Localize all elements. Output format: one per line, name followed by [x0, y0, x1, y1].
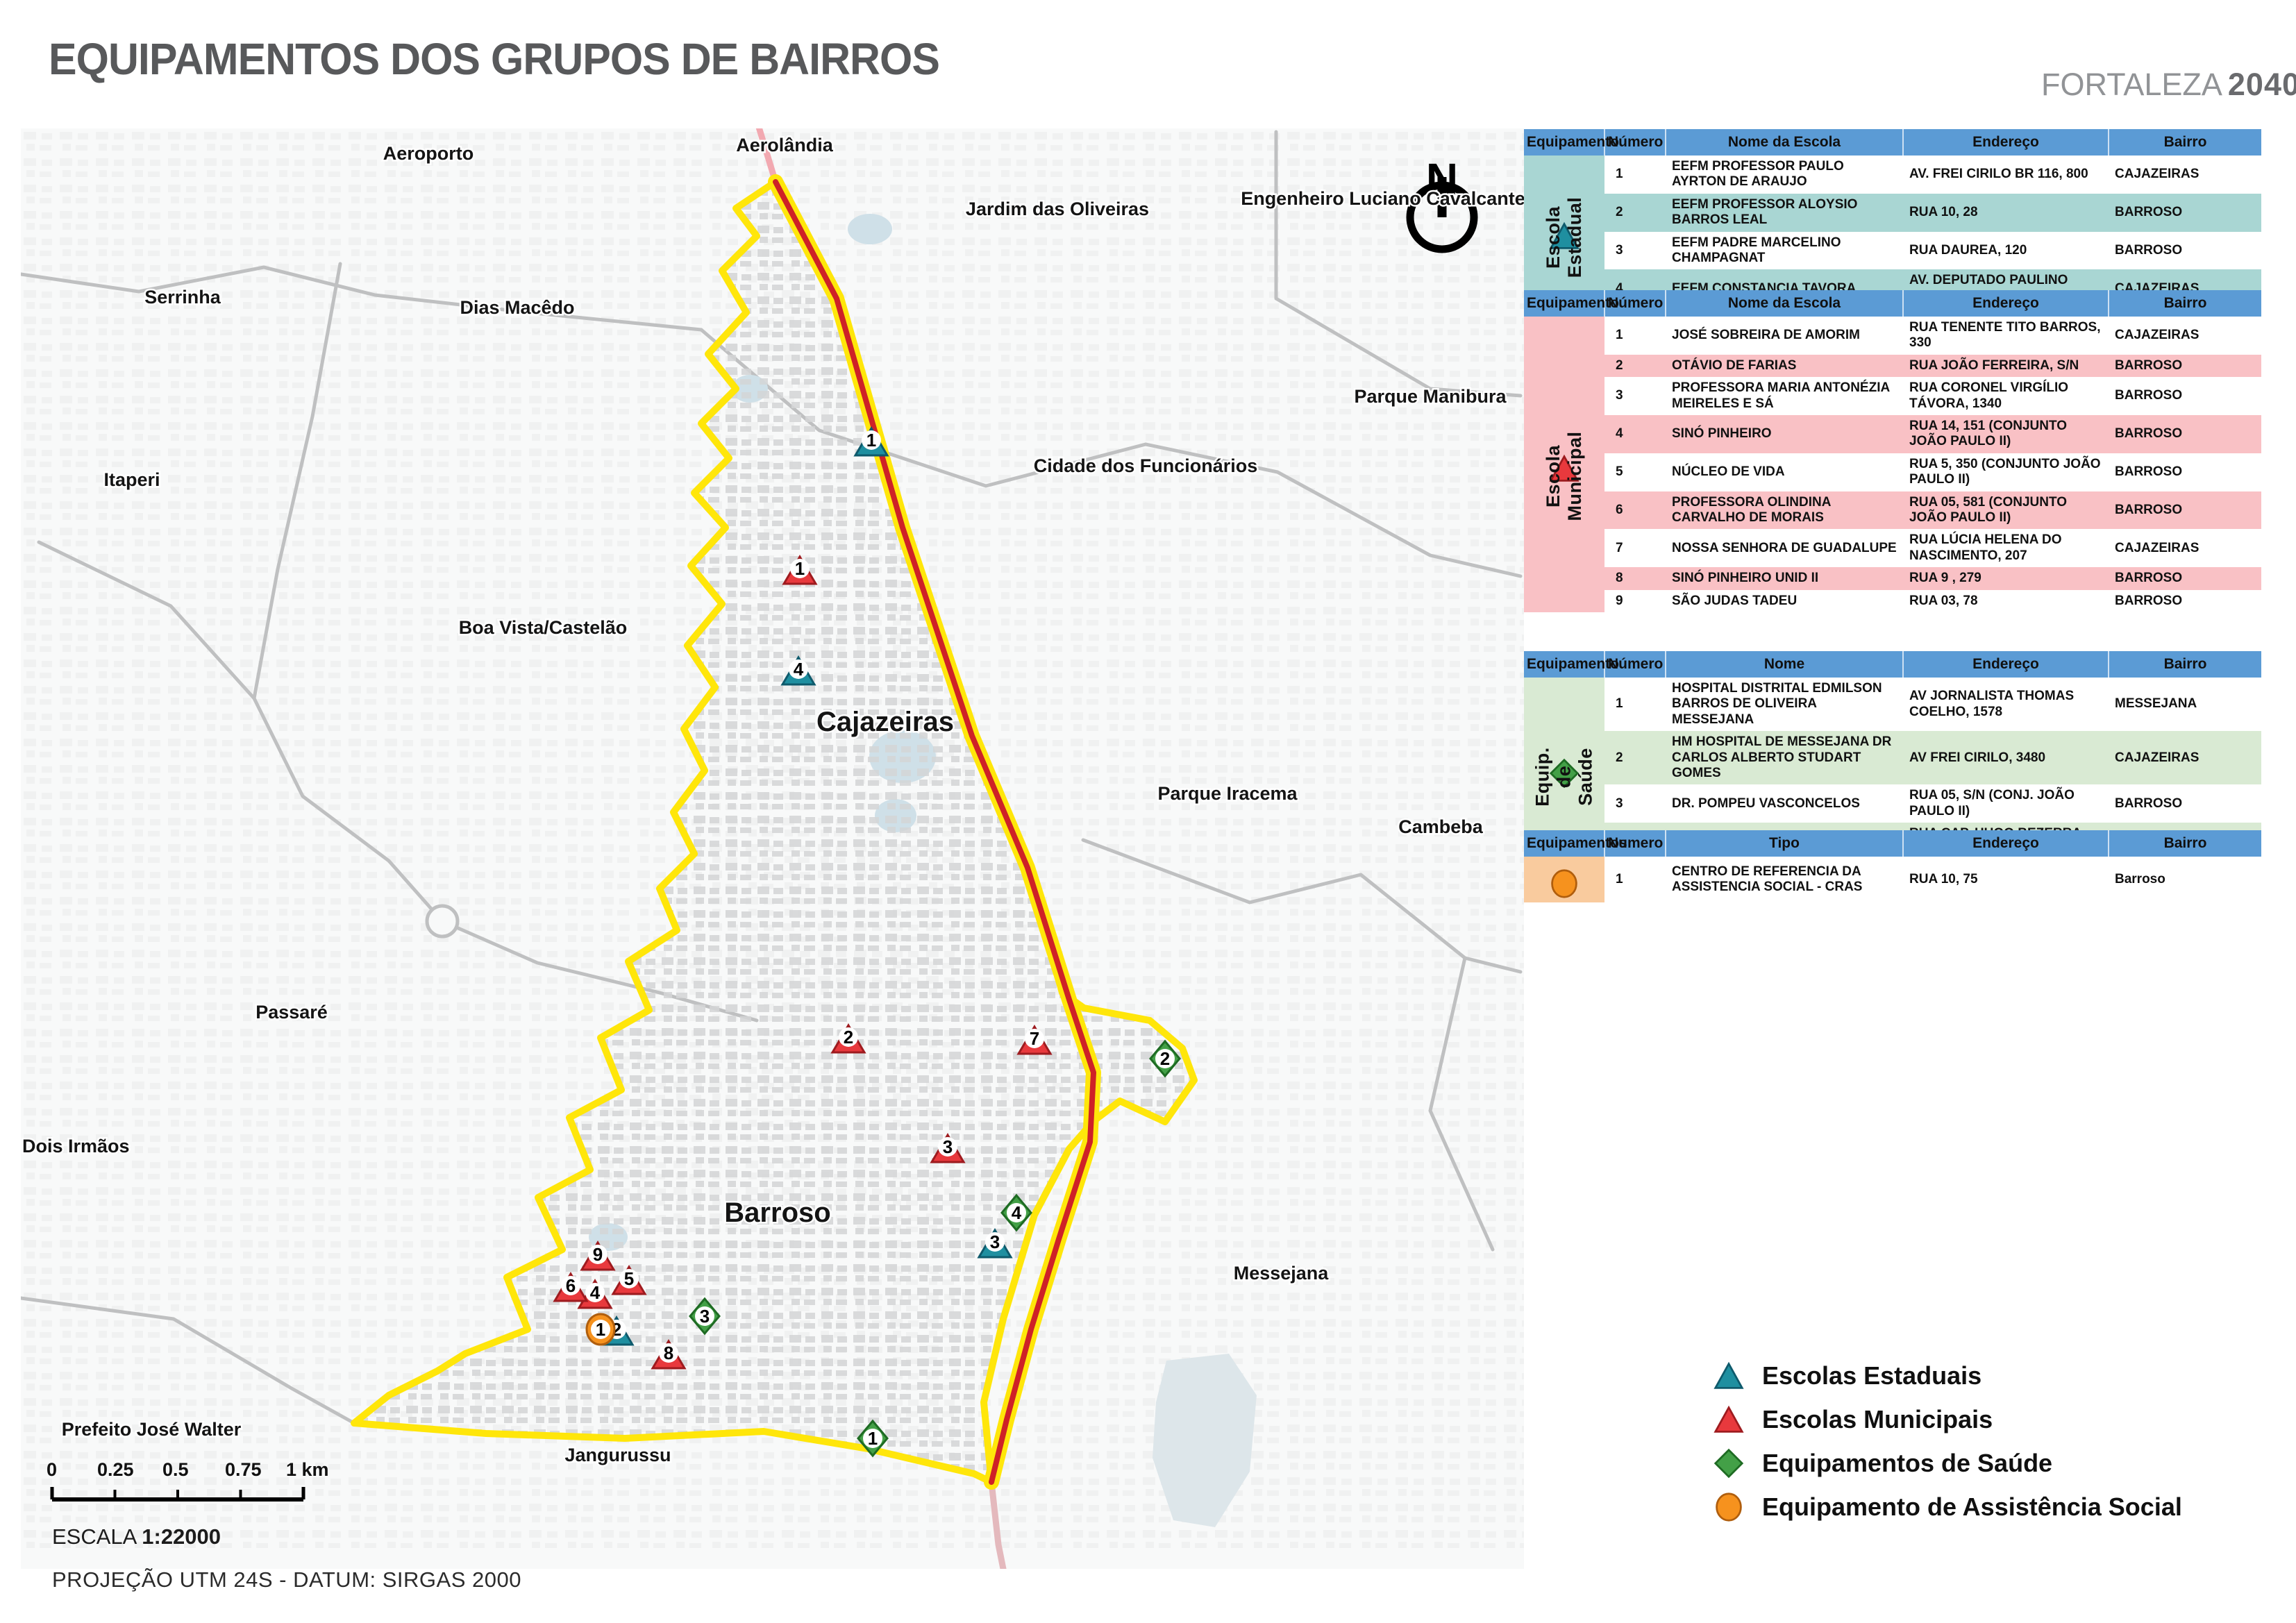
table-cell: BARROSO: [2109, 194, 2261, 232]
table-cell: EEFM PADRE MARCELINO CHAMPAGNAT: [1666, 232, 1903, 270]
table-cell: JOSÉ SOBREIRA DE AMORIM: [1666, 317, 1903, 355]
svg-text:4: 4: [590, 1282, 601, 1303]
table-cell: RUA DAUREA, 120: [1903, 232, 2109, 270]
table-cell: BARROSO: [2109, 232, 2261, 270]
table-cell: CAJAZEIRAS: [2109, 317, 2261, 355]
table-cell: 6: [1604, 491, 1666, 530]
group-icon-cell: Escola Estadual: [1524, 155, 1604, 308]
place-label: Boa Vista/Castelão: [459, 617, 628, 638]
svg-text:4: 4: [794, 659, 804, 680]
table-cell: SÃO JUDAS TADEU: [1666, 590, 1903, 612]
table-cell: CAJAZEIRAS: [2109, 529, 2261, 567]
table-cell: RUA 03, 78: [1903, 590, 2109, 612]
table-cell: Barroso: [2109, 857, 2261, 902]
table-cell: 3: [1604, 377, 1666, 415]
place-label: Jardim das Oliveiras: [966, 199, 1149, 219]
group-label: Escola Estadual: [1543, 197, 1586, 278]
table-row: Escola Estadual1EEFM PROFESSOR PAULO AYR…: [1524, 155, 2261, 194]
column-header: Equipamento: [1524, 651, 1604, 678]
place-label: Jangurussu: [564, 1445, 671, 1465]
table-cell: 1: [1604, 155, 1666, 194]
triangle-icon: [1713, 1404, 1744, 1435]
table-cell: CAJAZEIRAS: [2109, 155, 2261, 194]
table-cell: 2: [1604, 731, 1666, 784]
place-label: Cambeba: [1398, 816, 1484, 837]
scalebar-tick-label: 0.25: [97, 1459, 134, 1481]
brand-name: FORTALEZA: [2041, 67, 2222, 102]
column-header: Bairro: [2109, 290, 2261, 317]
place-label: Passaré: [255, 1002, 328, 1023]
svg-text:7: 7: [1030, 1028, 1039, 1049]
svg-text:2: 2: [844, 1027, 853, 1048]
table-cell: NÚCLEO DE VIDA: [1666, 453, 1903, 491]
table-social: EquipamentosNumeroTipoEndereçoBairro1CEN…: [1524, 830, 2261, 902]
table-cell: CENTRO DE REFERENCIA DA ASSISTENCIA SOCI…: [1666, 857, 1903, 902]
place-label: Messejana: [1234, 1263, 1330, 1284]
place-label: Engenheiro Luciano Cavalcante: [1241, 188, 1524, 209]
table-cell: EEFM PROFESSOR ALOYSIO BARROS LEAL: [1666, 194, 1903, 232]
table-cell: DR. POMPEU VASCONCELOS: [1666, 784, 1903, 823]
column-header: Bairro: [2109, 651, 2261, 678]
column-header: Equipamentos: [1524, 830, 1604, 857]
legend-item: Equipamentos de Saúde: [1713, 1447, 2182, 1480]
table-estadual: EquipamentoNúmeroNome da EscolaEndereçoB…: [1524, 129, 2261, 308]
table-cell: BARROSO: [2109, 590, 2261, 612]
table-cell: 1: [1604, 317, 1666, 355]
place-label: Parque Manibura: [1354, 386, 1507, 407]
column-header: Endereço: [1903, 290, 2109, 317]
scale-value: 1:22000: [142, 1524, 221, 1549]
table-row: 3PROFESSORA MARIA ANTONÉZIA MEIRELES E S…: [1524, 377, 2261, 415]
circle-icon: [1549, 868, 1579, 899]
table-row: Equip. de Saúde1HOSPITAL DISTRITAL EDMIL…: [1524, 678, 2261, 731]
table-row: 3EEFM PADRE MARCELINO CHAMPAGNATRUA DAUR…: [1524, 232, 2261, 270]
svg-text:1: 1: [795, 558, 805, 579]
svg-text:1: 1: [596, 1319, 605, 1340]
circle-icon: [1713, 1492, 1744, 1522]
table-cell: RUA TENENTE TITO BARROS, 330: [1903, 317, 2109, 355]
legend: Escolas EstaduaisEscolas MunicipaisEquip…: [1713, 1359, 2182, 1534]
scale-text: ESCALA 1:22000: [52, 1524, 221, 1549]
triangle-icon: [1713, 1361, 1744, 1391]
table-cell: BARROSO: [2109, 453, 2261, 491]
svg-text:8: 8: [664, 1343, 673, 1363]
table-cell: OTÁVIO DE FARIAS: [1666, 355, 1903, 377]
table-cell: 3: [1604, 232, 1666, 270]
column-header: Número: [1604, 129, 1666, 155]
scalebar-tick-label: 1 km: [286, 1459, 329, 1481]
column-header: Numero: [1604, 830, 1666, 857]
column-header: Equipamento: [1524, 290, 1604, 317]
table-cell: 8: [1604, 567, 1666, 589]
table-cell: SINÓ PINHEIRO UNID II: [1666, 567, 1903, 589]
scalebar: 00.250.50.751 km: [43, 1459, 376, 1507]
table-municipal: EquipamentoNúmeroNome da EscolaEndereçoB…: [1524, 290, 2261, 612]
legend-label: Equipamento de Assistência Social: [1762, 1492, 2182, 1522]
legend-item: Escolas Municipais: [1713, 1403, 2182, 1436]
page-title: EQUIPAMENTOS DOS GRUPOS DE BAIRROS: [49, 33, 939, 85]
column-header: Equipamento: [1524, 129, 1604, 155]
place-label: Itaperi: [103, 469, 160, 490]
place-label: Parque Iracema: [1157, 783, 1298, 804]
scalebar-tick-label: 0.75: [225, 1459, 262, 1481]
legend-label: Equipamentos de Saúde: [1762, 1449, 2052, 1478]
place-label: Cajazeiras: [816, 707, 954, 737]
table-cell: BARROSO: [2109, 415, 2261, 453]
column-header: Bairro: [2109, 129, 2261, 155]
svg-text:6: 6: [566, 1275, 576, 1296]
group-label: Escola Municipal: [1543, 432, 1586, 521]
scalebar-labels: 00.250.50.751 km: [43, 1459, 376, 1483]
projection-text: PROJEÇÃO UTM 24S - DATUM: SIRGAS 2000: [52, 1567, 521, 1592]
scalebar-tick-label: 0: [47, 1459, 57, 1481]
legend-label: Escolas Estaduais: [1762, 1361, 1981, 1390]
table-row: 2HM HOSPITAL DE MESSEJANA DR CARLOS ALBE…: [1524, 731, 2261, 784]
social-marker: 1: [587, 1314, 614, 1345]
table-cell: PROFESSORA MARIA ANTONÉZIA MEIRELES E SÁ: [1666, 377, 1903, 415]
table-row: 2EEFM PROFESSOR ALOYSIO BARROS LEALRUA 1…: [1524, 194, 2261, 232]
table-cell: RUA LÚCIA HELENA DO NASCIMENTO, 207: [1903, 529, 2109, 567]
group-label: Equip. de Saúde: [1532, 747, 1596, 807]
svg-text:3: 3: [700, 1306, 710, 1327]
table-cell: RUA 10, 28: [1903, 194, 2109, 232]
column-header: Nome da Escola: [1666, 129, 1903, 155]
table-cell: SINÓ PINHEIRO: [1666, 415, 1903, 453]
column-header: Bairro: [2109, 830, 2261, 857]
column-header: Nome da Escola: [1666, 290, 1903, 317]
place-label: Cidade dos Funcionários: [1034, 455, 1258, 476]
table-row: 5NÚCLEO DE VIDARUA 5, 350 (CONJUNTO JOÃO…: [1524, 453, 2261, 491]
table-row: 7NOSSA SENHORA DE GUADALUPERUA LÚCIA HEL…: [1524, 529, 2261, 567]
table-row: 4SINÓ PINHEIRORUA 14, 151 (CONJUNTO JOÃO…: [1524, 415, 2261, 453]
table-cell: RUA CORONEL VIRGÍLIO TÁVORA, 1340: [1903, 377, 2109, 415]
table-cell: 1: [1604, 678, 1666, 731]
table-cell: 7: [1604, 529, 1666, 567]
table-cell: AV FREI CIRILO, 3480: [1903, 731, 2109, 784]
table-cell: RUA 10, 75: [1903, 857, 2109, 902]
place-label: Prefeito José Walter: [62, 1419, 242, 1440]
table-cell: BARROSO: [2109, 784, 2261, 823]
place-label: Aerolândia: [736, 135, 834, 155]
table-cell: 9: [1604, 590, 1666, 612]
table-cell: BARROSO: [2109, 567, 2261, 589]
place-label: Serrinha: [144, 287, 221, 308]
column-header: Tipo: [1666, 830, 1903, 857]
table-row: 9SÃO JUDAS TADEURUA 03, 78BARROSO: [1524, 590, 2261, 612]
table-saude: EquipamentoNúmeroNomeEndereçoBairroEquip…: [1524, 651, 2261, 861]
legend-label: Escolas Municipais: [1762, 1405, 1993, 1434]
legend-item: Equipamento de Assistência Social: [1713, 1490, 2182, 1524]
table-cell: CAJAZEIRAS: [2109, 731, 2261, 784]
svg-text:3: 3: [943, 1136, 953, 1157]
svg-text:1: 1: [866, 430, 876, 451]
column-header: Endereço: [1903, 129, 2109, 155]
svg-text:9: 9: [593, 1244, 603, 1265]
table-cell: RUA 14, 151 (CONJUNTO JOÃO PAULO II): [1903, 415, 2109, 453]
table-cell: MESSEJANA: [2109, 678, 2261, 731]
table-row: 3DR. POMPEU VASCONCELOSRUA 05, S/N (CONJ…: [1524, 784, 2261, 823]
column-header: Endereço: [1903, 830, 2109, 857]
table-cell: AV JORNALISTA THOMAS COELHO, 1578: [1903, 678, 2109, 731]
column-header: Endereço: [1903, 651, 2109, 678]
table-cell: 2: [1604, 355, 1666, 377]
table-cell: 2: [1604, 194, 1666, 232]
table-row: 1CENTRO DE REFERENCIA DA ASSISTENCIA SOC…: [1524, 857, 2261, 902]
svg-text:5: 5: [624, 1268, 634, 1289]
table-row: 8SINÓ PINHEIRO UNID IIRUA 9 , 279BARROSO: [1524, 567, 2261, 589]
table-cell: RUA 05, 581 (CONJUNTO JOÃO PAULO II): [1903, 491, 2109, 530]
svg-text:1: 1: [868, 1428, 878, 1449]
place-label: Dias Macêdo: [460, 297, 574, 318]
scalebar-tick-label: 0.5: [162, 1459, 189, 1481]
fortaleza-2040-logo: FORTALEZA2040: [2041, 67, 2249, 103]
place-label: Aeroporto: [383, 143, 474, 164]
svg-text:4: 4: [1012, 1202, 1022, 1223]
table-row: 2OTÁVIO DE FARIASRUA JOÃO FERREIRA, S/NB…: [1524, 355, 2261, 377]
table-cell: RUA 9 , 279: [1903, 567, 2109, 589]
table-cell: RUA 05, S/N (CONJ. JOÃO PAULO II): [1903, 784, 2109, 823]
table-cell: RUA JOÃO FERREIRA, S/N: [1903, 355, 2109, 377]
table-row: 6PROFESSORA OLINDINA CARVALHO DE MORAISR…: [1524, 491, 2261, 530]
svg-text:2: 2: [1160, 1048, 1170, 1069]
table-cell: 1: [1604, 857, 1666, 902]
table-cell: PROFESSORA OLINDINA CARVALHO DE MORAIS: [1666, 491, 1903, 530]
place-label: Barroso: [724, 1197, 830, 1228]
table-cell: 4: [1604, 415, 1666, 453]
scalebar-bar: [43, 1483, 376, 1504]
diamond-icon: [1713, 1448, 1744, 1479]
table-cell: AV. FREI CIRILO BR 116, 800: [1903, 155, 2109, 194]
table-cell: 5: [1604, 453, 1666, 491]
table-row: Escola Municipal1JOSÉ SOBREIRA DE AMORIM…: [1524, 317, 2261, 355]
place-label: e Dois Irmãos: [21, 1136, 130, 1157]
group-icon-cell: Escola Municipal: [1524, 317, 1604, 612]
svg-text:3: 3: [990, 1231, 1000, 1252]
brand-year: 2040: [2228, 67, 2296, 102]
table-cell: HM HOSPITAL DE MESSEJANA DR CARLOS ALBER…: [1666, 731, 1903, 784]
scale-label: ESCALA: [52, 1524, 136, 1549]
table-cell: NOSSA SENHORA DE GUADALUPE: [1666, 529, 1903, 567]
column-header: Nome: [1666, 651, 1903, 678]
map: N AeroportoAerolândiaJardim das Oliveira…: [21, 128, 1524, 1569]
table-cell: HOSPITAL DISTRITAL EDMILSON BARROS DE OL…: [1666, 678, 1903, 731]
table-cell: BARROSO: [2109, 355, 2261, 377]
column-header: Número: [1604, 651, 1666, 678]
table-cell: EEFM PROFESSOR PAULO AYRTON DE ARAUJO: [1666, 155, 1903, 194]
legend-item: Escolas Estaduais: [1713, 1359, 2182, 1393]
table-cell: BARROSO: [2109, 491, 2261, 530]
table-cell: RUA 5, 350 (CONJUNTO JOÃO PAULO II): [1903, 453, 2109, 491]
column-header: Número: [1604, 290, 1666, 317]
group-icon-cell: [1524, 857, 1604, 902]
table-cell: 3: [1604, 784, 1666, 823]
table-cell: BARROSO: [2109, 377, 2261, 415]
